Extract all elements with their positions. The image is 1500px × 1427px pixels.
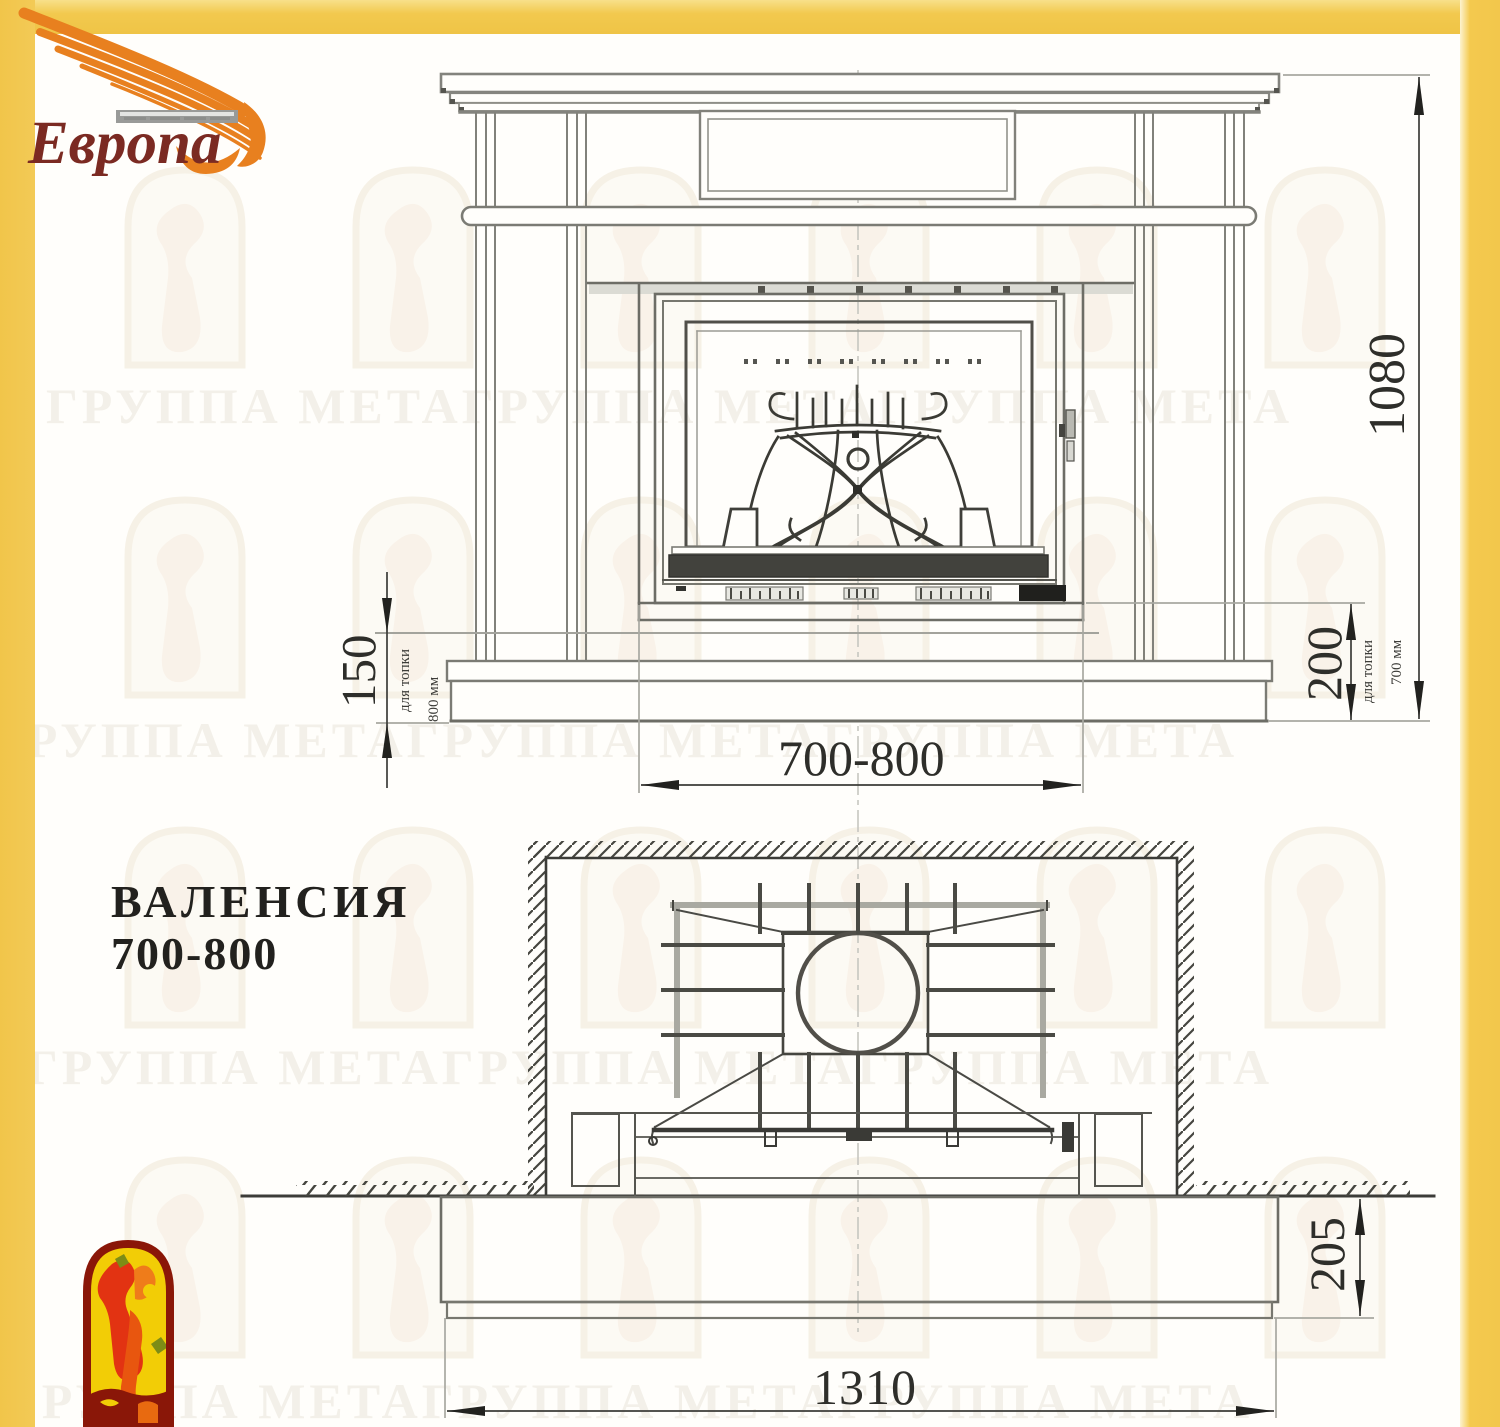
- svg-text:ВАЛЕНСИЯ: ВАЛЕНСИЯ: [111, 876, 411, 927]
- svg-text:800 мм: 800 мм: [426, 676, 442, 722]
- svg-text:1080: 1080: [1359, 333, 1416, 437]
- svg-text:для топки: для топки: [397, 649, 413, 712]
- svg-text:150: 150: [331, 635, 386, 709]
- svg-text:700-800: 700-800: [111, 928, 278, 979]
- svg-text:1310: 1310: [813, 1359, 917, 1415]
- svg-text:для топки: для топки: [1360, 640, 1376, 703]
- svg-text:700-800: 700-800: [778, 730, 945, 786]
- svg-text:205: 205: [1299, 1217, 1355, 1292]
- svg-text:Европа: Европа: [27, 110, 221, 177]
- svg-text:700 мм: 700 мм: [1389, 639, 1405, 685]
- svg-text:200: 200: [1296, 626, 1352, 701]
